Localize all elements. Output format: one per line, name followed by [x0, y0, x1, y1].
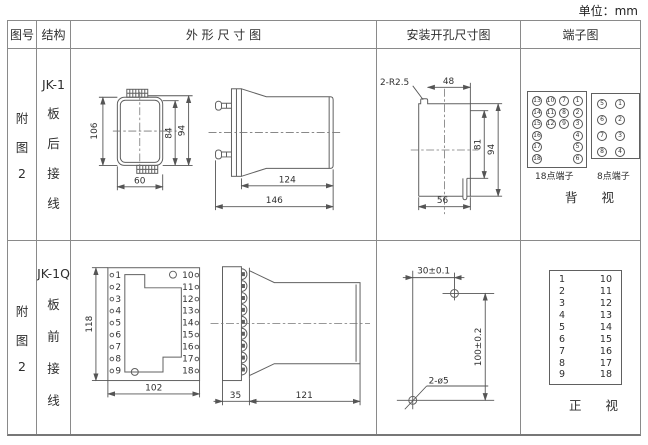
terminal-pin: 10 — [546, 96, 556, 106]
pin-label: 2 — [115, 283, 121, 293]
spec-table: 图号 结构 外 形 尺 寸 图 安装开孔尺寸图 端子图 附 图 2 JK-1 板… — [7, 20, 641, 436]
terminal-number: 18 — [600, 369, 612, 380]
structure-line: 后 — [47, 133, 60, 152]
pin-label: 13 — [182, 307, 193, 317]
pin-label: 6 — [115, 331, 121, 341]
dim-label-124: 124 — [279, 175, 296, 185]
row1-install-cell: 2-R2.5 48 81 94 56 — [377, 49, 521, 241]
terminal-pin: 16 — [532, 131, 542, 141]
pin-label: 1 — [115, 271, 121, 281]
pin-label: 9 — [115, 367, 121, 377]
fig-no-line: 2 — [18, 359, 26, 374]
structure-line: JK-1 — [42, 77, 65, 92]
pin-label: 17 — [182, 355, 193, 365]
terminal-pin: 2 — [573, 108, 583, 118]
terminal-number: 14 — [600, 322, 612, 333]
terminal-number: 5 — [559, 322, 565, 333]
structure-line: 线 — [47, 390, 60, 409]
terminal-pin: 1 — [615, 99, 625, 109]
terminal-pin: 6 — [597, 115, 607, 125]
pin-label: 5 — [115, 319, 121, 329]
terminal-list-row: 7 16 — [559, 346, 612, 357]
structure-line: JK-1Q — [37, 266, 70, 281]
dim-label-121: 121 — [296, 391, 313, 401]
terminal-pin: 18 — [532, 154, 542, 164]
terminal-pin: 5 — [573, 142, 583, 152]
dim-label-118: 118 — [85, 315, 95, 332]
unit-label: 单位：mm — [579, 2, 638, 19]
terminal-number: 15 — [600, 334, 612, 345]
pin-label: 11 — [182, 283, 193, 293]
header-terminal: 端子图 — [521, 21, 640, 49]
row2-structure-cell: JK-1Q 板 前 接 线 — [37, 241, 71, 434]
dim-label-102: 102 — [145, 383, 162, 393]
row2-install-cell: 30±0.1 100±0.2 2-ø5 — [377, 241, 521, 434]
terminal-number: 8 — [559, 358, 565, 369]
dim-label-81: 81 — [473, 139, 483, 150]
dim-label-100: 100±0.2 — [474, 328, 484, 367]
terminal-pin: 7 — [597, 131, 607, 141]
terminal-pin: 17 — [532, 142, 542, 152]
terminal-number: 10 — [600, 274, 612, 285]
terminal-pin: 8 — [597, 147, 607, 157]
pin-label: 15 — [182, 331, 193, 341]
row1-terminal-cell: 13 10 7 1 14 11 8 2 15 12 9 3 16 4 17 — [521, 49, 640, 241]
dim-label-94: 94 — [487, 143, 497, 155]
fig-no-line: 图 — [16, 137, 29, 156]
structure-line: 接 — [47, 163, 60, 182]
terminal-pin: 7 — [559, 96, 569, 106]
header-install: 安装开孔尺寸图 — [377, 21, 521, 49]
fig-no-line: 附 — [16, 108, 29, 127]
terminal-list-row: 3 12 — [559, 298, 612, 309]
terminal-number: 3 — [559, 298, 565, 309]
pin-numbers: 1 2 3 4 5 6 7 8 9 10 11 12 13 14 — [115, 271, 194, 377]
row2-outline-cell: 1 2 3 4 5 6 7 8 9 10 11 12 13 14 — [71, 241, 377, 434]
side-view-dimensions: 35 121 — [214, 364, 361, 406]
side-view — [209, 89, 343, 177]
terminal-list-box: 1 10 2 11 3 12 4 13 5 14 — [549, 270, 622, 385]
cutout-dimensions: 2-R2.5 48 81 94 56 — [380, 77, 502, 210]
rear-view-label: 背 视 — [565, 187, 624, 206]
row1-structure-cell: JK-1 板 后 接 线 — [37, 49, 71, 241]
terminal-number: 13 — [600, 310, 612, 321]
terminal-list-row: 5 14 — [559, 322, 612, 333]
header-fig-no: 图号 — [8, 21, 37, 49]
terminal-pin: 11 — [546, 108, 556, 118]
terminal-pin: 6 — [573, 154, 583, 164]
dim-label-2phi5: 2-ø5 — [429, 377, 449, 387]
terminal-pin: 2 — [615, 115, 625, 125]
outline-drawing-jk1: 106 84 94 60 — [71, 49, 376, 240]
hole-dimensions: 30±0.1 100±0.2 2-ø5 — [403, 267, 488, 410]
pin-label: 10 — [182, 271, 194, 281]
terminal-number: 11 — [600, 286, 612, 297]
header-outline: 外 形 尺 寸 图 — [71, 21, 377, 49]
terminal-number: 12 — [600, 298, 612, 309]
terminal-list-row: 1 10 — [559, 274, 612, 285]
structure-line: 接 — [47, 358, 60, 377]
structure-line: 板 — [47, 103, 60, 122]
terminal-pin: 5 — [597, 99, 607, 109]
pin-label: 8 — [115, 355, 121, 365]
dim-label-146: 146 — [266, 196, 283, 206]
terminal-number: 7 — [559, 346, 565, 357]
terminal-list-row: 6 15 — [559, 334, 612, 345]
front-view-label: 正 视 — [569, 395, 628, 414]
terminal-block-8: 5 1 6 2 7 3 8 4 — [591, 93, 640, 159]
terminal-list-row: 9 18 — [559, 369, 612, 380]
dim-label-106: 106 — [90, 122, 100, 139]
terminal-block-8-label: 8点端子 — [597, 169, 630, 182]
pin-label: 14 — [182, 319, 194, 329]
terminal-number: 2 — [559, 286, 565, 297]
terminal-pin: 4 — [573, 131, 583, 141]
dim-label-2R2.5: 2-R2.5 — [380, 78, 409, 88]
terminal-number: 4 — [559, 310, 565, 321]
terminal-number: 6 — [559, 334, 565, 345]
pin-label: 16 — [182, 343, 194, 353]
terminal-pin: 3 — [615, 131, 625, 141]
terminal-list-row: 8 17 — [559, 358, 612, 369]
terminal-pin: 9 — [559, 119, 569, 129]
install-hole-drawing-jk1q: 30±0.1 100±0.2 2-ø5 — [377, 241, 520, 434]
pin-label: 4 — [115, 307, 121, 317]
dim-label-60: 60 — [134, 176, 146, 186]
row1-fig-no-cell: 附 图 2 — [8, 49, 37, 241]
terminal-number: 16 — [600, 346, 612, 357]
pin-label: 18 — [182, 367, 194, 377]
pin-label: 12 — [182, 295, 193, 305]
header-structure: 结构 — [37, 21, 71, 49]
terminal-pin: 12 — [546, 119, 556, 129]
terminal-list-row: 4 13 — [559, 310, 612, 321]
terminal-list-row: 2 11 — [559, 286, 612, 297]
pin-label: 7 — [115, 343, 121, 353]
row2-fig-no-cell: 附 图 2 — [8, 241, 37, 434]
terminal-pin: 13 — [532, 96, 542, 106]
front-view-dimensions: 106 84 94 60 — [90, 96, 193, 191]
outline-drawing-jk1q: 1 2 3 4 5 6 7 8 9 10 11 12 13 14 — [71, 241, 376, 434]
structure-line: 线 — [47, 193, 60, 212]
terminal-number: 1 — [559, 274, 565, 285]
terminal-number: 17 — [600, 358, 612, 369]
dim-label-84: 84 — [165, 127, 175, 139]
front-view: 1 2 3 4 5 6 7 8 9 10 11 12 13 14 — [108, 268, 200, 381]
dim-label-30: 30±0.1 — [417, 267, 450, 277]
fig-no-line: 图 — [16, 330, 29, 349]
dim-label-35: 35 — [230, 391, 241, 401]
terminal-pin: 4 — [615, 147, 625, 157]
structure-line: 前 — [47, 326, 60, 345]
install-cutout-drawing-jk1: 2-R2.5 48 81 94 56 — [377, 49, 520, 240]
terminal-block-18-label: 18点端子 — [535, 169, 573, 182]
terminal-pin: 15 — [532, 119, 542, 129]
row2-terminal-cell: 1 10 2 11 3 12 4 13 5 14 — [521, 241, 640, 434]
terminal-block-18: 13 10 7 1 14 11 8 2 15 12 9 3 16 4 17 — [527, 91, 587, 168]
terminal-number: 9 — [559, 369, 565, 380]
dim-label-56: 56 — [437, 196, 449, 206]
side-view — [211, 267, 370, 381]
terminal-pin: 14 — [532, 108, 542, 118]
terminal-pin: 1 — [573, 96, 583, 106]
terminal-pin: 3 — [573, 119, 583, 129]
terminal-pin: 8 — [559, 108, 569, 118]
fig-no-line: 2 — [18, 166, 26, 181]
pin-label: 3 — [115, 295, 121, 305]
row1-outline-cell: 106 84 94 60 — [71, 49, 377, 241]
dim-label-94: 94 — [178, 125, 188, 137]
dim-label-48: 48 — [443, 77, 455, 87]
structure-line: 板 — [47, 294, 60, 313]
fig-no-line: 附 — [16, 301, 29, 320]
side-view-dimensions: 124 146 — [216, 160, 334, 210]
page: 单位：mm 图号 结构 外 形 尺 寸 图 安装开孔尺寸图 端子图 附 图 2 … — [0, 0, 648, 445]
